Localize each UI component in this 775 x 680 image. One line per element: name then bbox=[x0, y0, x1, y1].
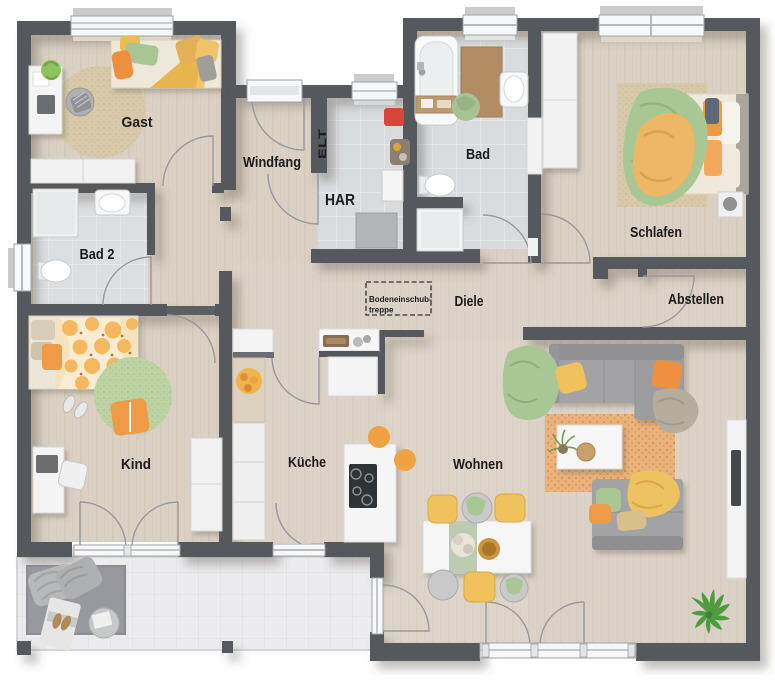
svg-text:Küche: Küche bbox=[288, 454, 326, 471]
svg-text:treppe: treppe bbox=[369, 306, 394, 315]
svg-text:Windfang: Windfang bbox=[243, 154, 301, 171]
svg-text:Kind: Kind bbox=[121, 456, 151, 473]
svg-text:Bad: Bad bbox=[466, 146, 490, 163]
svg-text:Bodeneinschub-: Bodeneinschub- bbox=[369, 295, 432, 304]
svg-text:Wohnen: Wohnen bbox=[453, 456, 503, 473]
svg-text:Bad 2: Bad 2 bbox=[80, 246, 115, 263]
svg-text:ELT: ELT bbox=[317, 129, 329, 159]
svg-text:Gast: Gast bbox=[122, 114, 153, 131]
svg-text:Diele: Diele bbox=[455, 293, 484, 310]
svg-text:HAR: HAR bbox=[325, 192, 355, 209]
svg-text:Schlafen: Schlafen bbox=[630, 224, 682, 241]
svg-text:Abstellen: Abstellen bbox=[668, 291, 724, 308]
